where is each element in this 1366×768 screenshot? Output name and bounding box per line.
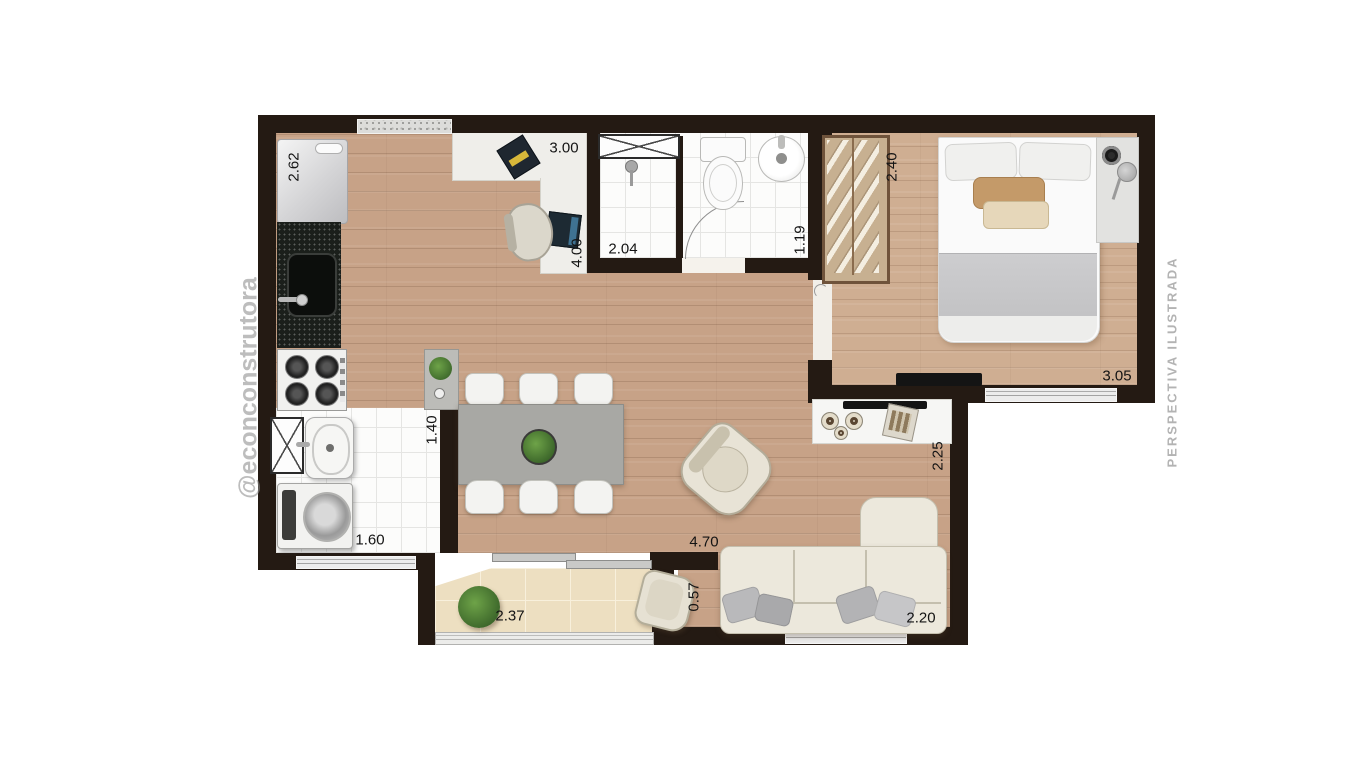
stove-burner	[315, 355, 339, 379]
wardrobe-divider	[852, 138, 854, 275]
balcony-chair-cushion	[643, 577, 685, 622]
washing-machine	[277, 483, 353, 549]
balcony-sliding-door-rail-2	[566, 560, 652, 569]
bed-pillow-left	[944, 142, 1017, 181]
stove-burner	[315, 382, 339, 406]
console-bowl	[834, 426, 848, 440]
refrigerator-handle	[315, 143, 343, 154]
console-bowl	[845, 412, 863, 430]
service-window	[296, 556, 416, 569]
balcony-glass-railing	[435, 632, 654, 645]
balcony-plant	[458, 586, 500, 628]
stove-cooktop	[277, 349, 347, 411]
bathroom-niche-box	[598, 134, 680, 159]
dim-label-balcony-width: 2.37	[495, 608, 524, 625]
laundry-sink	[305, 417, 354, 479]
bedroom-door-hinge-mark	[814, 284, 828, 298]
laundry-sink-drain	[326, 444, 334, 452]
dim-label-sofa-wall: 2.20	[906, 610, 935, 627]
tv-console	[812, 399, 952, 444]
sofa-seat-divider	[793, 550, 795, 602]
dim-label-living-length: 4.70	[689, 534, 718, 551]
floor-plan-canvas: 2.62 3.00 4.00 2.04 1.19 2.40 3.05 1.40 …	[0, 0, 1366, 768]
console-magazine-art	[888, 410, 912, 434]
sideboard-plant	[429, 357, 452, 380]
wall-living-right	[950, 385, 968, 645]
nightstand-clock	[1102, 146, 1121, 165]
dim-label-tv-wall: 2.25	[930, 441, 947, 470]
dim-label-bedroom-width: 3.05	[1102, 368, 1131, 385]
kitchen-faucet-dot	[296, 294, 308, 306]
dim-label-balcony-depth: 0.57	[686, 582, 703, 611]
dim-label-shower: 2.04	[608, 241, 637, 258]
wall-right	[1137, 115, 1155, 403]
dim-label-kitchen-width: 3.00	[549, 140, 578, 157]
shower-head-arm	[630, 170, 633, 186]
wall-balcony-left	[418, 553, 435, 645]
bed-sheet-fold	[939, 316, 1097, 341]
desk-magazine-stripe	[509, 150, 530, 167]
dining-table	[458, 404, 624, 485]
dining-chair	[465, 373, 504, 407]
dining-chair	[519, 373, 558, 407]
table-centerpiece-plant	[521, 429, 557, 465]
kitchen-window-sill	[357, 119, 452, 134]
watermark-builder: @econconstrutora	[235, 277, 264, 499]
bed-blanket	[939, 253, 1097, 320]
laundry-sink-faucet	[296, 442, 310, 447]
wall-service-right	[440, 407, 458, 553]
wardrobe-shoe-rack	[822, 135, 890, 284]
nightstand-lamp-stem	[1112, 178, 1122, 200]
toilet-seat	[709, 164, 737, 202]
washing-machine-panel	[282, 490, 296, 540]
console-magazine	[882, 403, 919, 442]
kitchen-sink	[287, 253, 337, 317]
bathroom-sink-drain	[776, 153, 787, 164]
dim-label-service-width: 1.60	[355, 532, 384, 549]
dining-chair	[465, 480, 504, 514]
toilet-bowl	[703, 156, 743, 210]
dim-label-wardrobe-wall: 2.40	[884, 152, 901, 181]
bed-accent-pillow-small	[983, 201, 1049, 229]
dining-chair	[574, 480, 613, 514]
dim-label-bath-width: 1.19	[792, 225, 809, 254]
stove-burner	[285, 382, 309, 406]
bed-pillow-right	[1018, 142, 1091, 181]
wall-balcony-right-stub	[650, 552, 718, 570]
dining-chair	[519, 480, 558, 514]
dim-label-kitchen-depth: 4.00	[569, 238, 586, 267]
nightstand	[1096, 137, 1139, 243]
dining-chair	[574, 373, 613, 407]
bathroom-door-opening	[682, 258, 745, 273]
dim-label-fridge-wall: 2.62	[286, 152, 303, 181]
tv-bedroom-icon	[896, 373, 982, 386]
stove-knobs	[340, 358, 345, 402]
watermark-perspective-note: PERSPECTIVA ILUSTRADA	[1165, 256, 1180, 467]
washing-machine-drum	[303, 492, 351, 542]
dim-label-service-depth: 1.40	[424, 415, 441, 444]
sideboard-decor	[434, 388, 445, 399]
stove-burner	[285, 355, 309, 379]
bathroom-sink-faucet	[778, 135, 785, 149]
dining-sideboard	[424, 349, 459, 410]
wall-bedroom-door-corner	[808, 360, 832, 403]
bed	[938, 137, 1100, 343]
bedroom-window	[985, 388, 1117, 402]
bathroom-sink	[758, 136, 805, 182]
balcony-sliding-door-rail-1	[492, 553, 576, 562]
